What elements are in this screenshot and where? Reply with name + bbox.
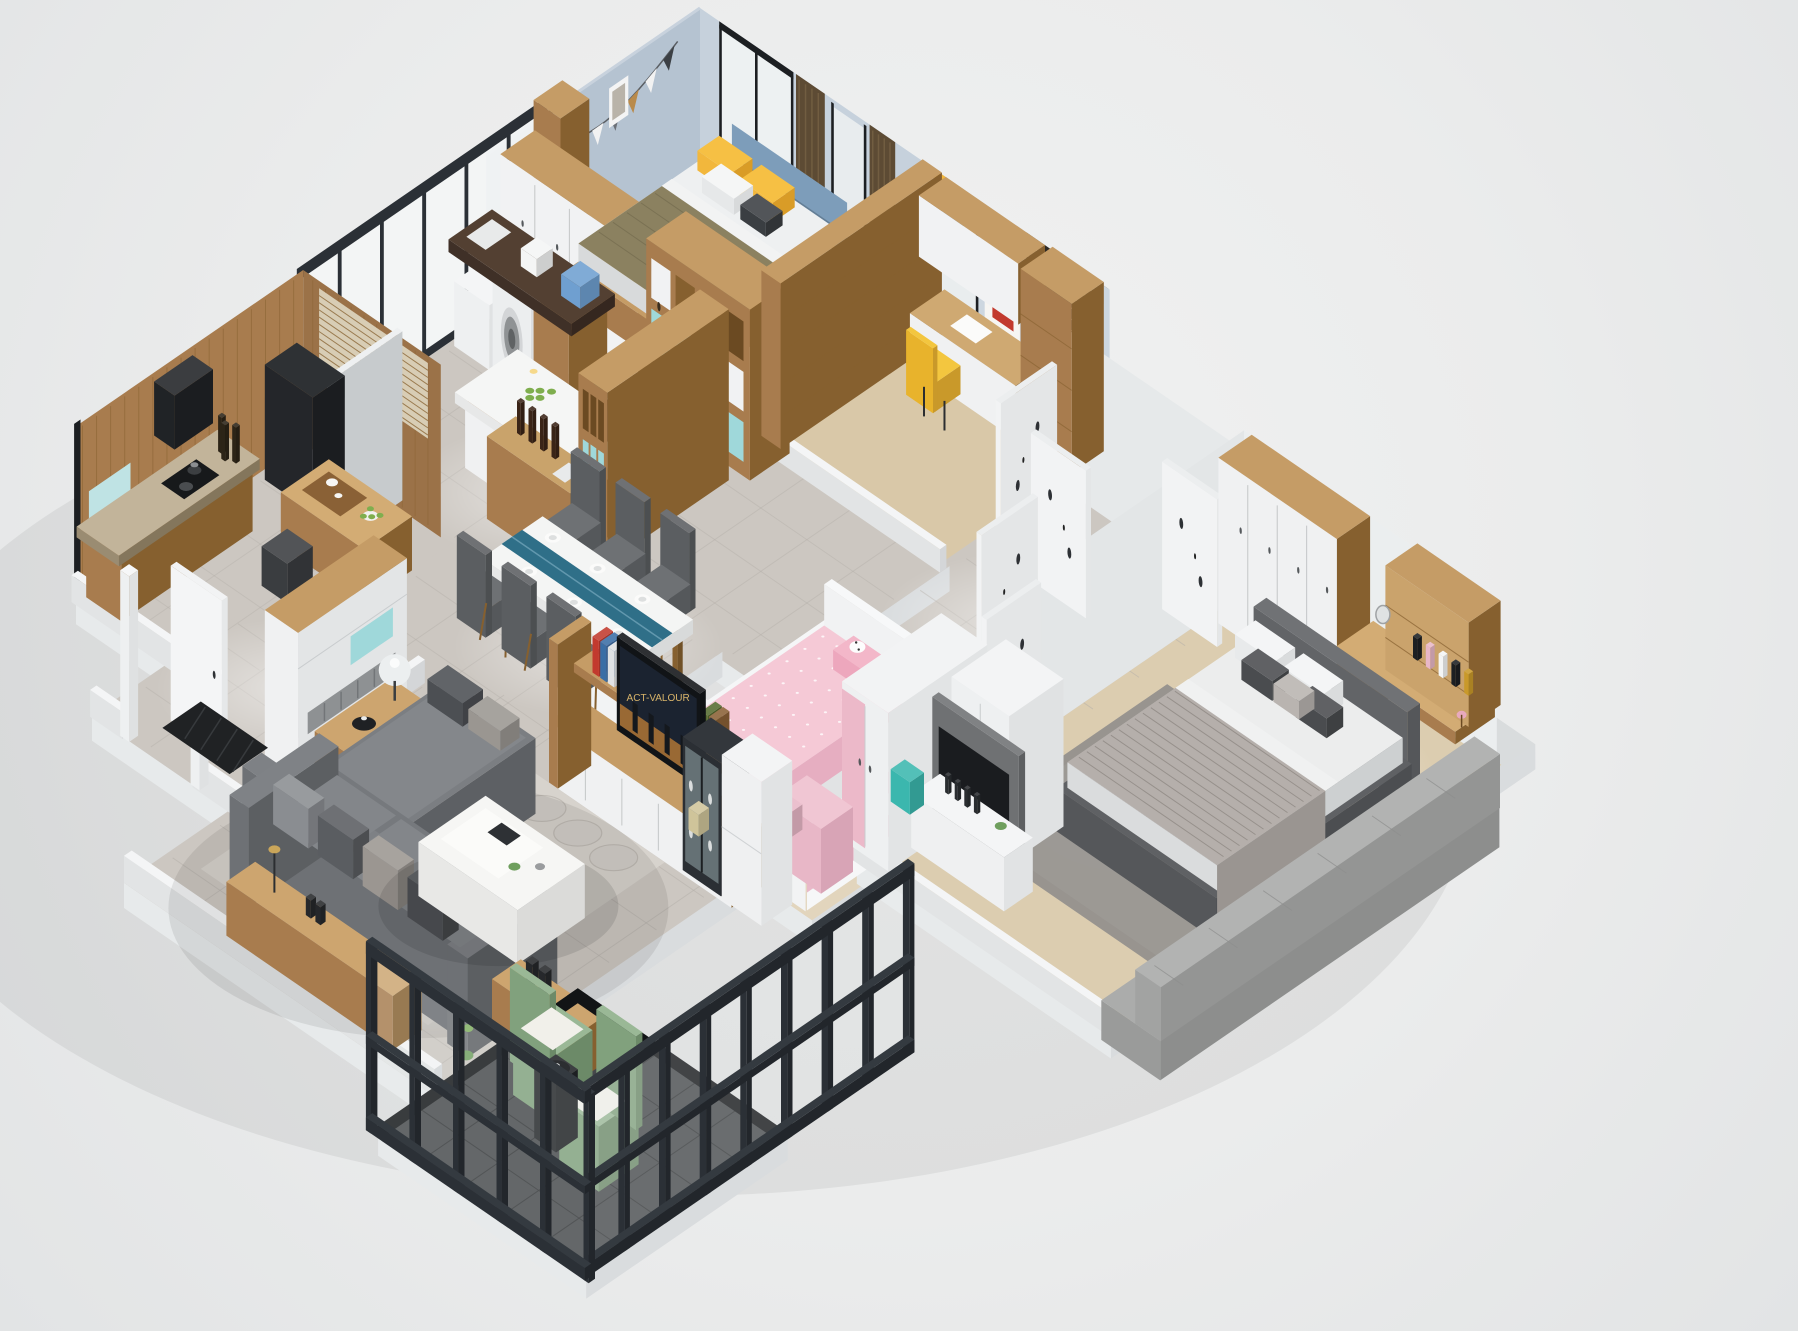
apartment-isometric-render: ACT-VALOUR [0, 0, 1798, 1331]
render-stage: ACT-VALOUR [0, 0, 1798, 1331]
tv-screen-title: ACT-VALOUR [627, 693, 690, 704]
